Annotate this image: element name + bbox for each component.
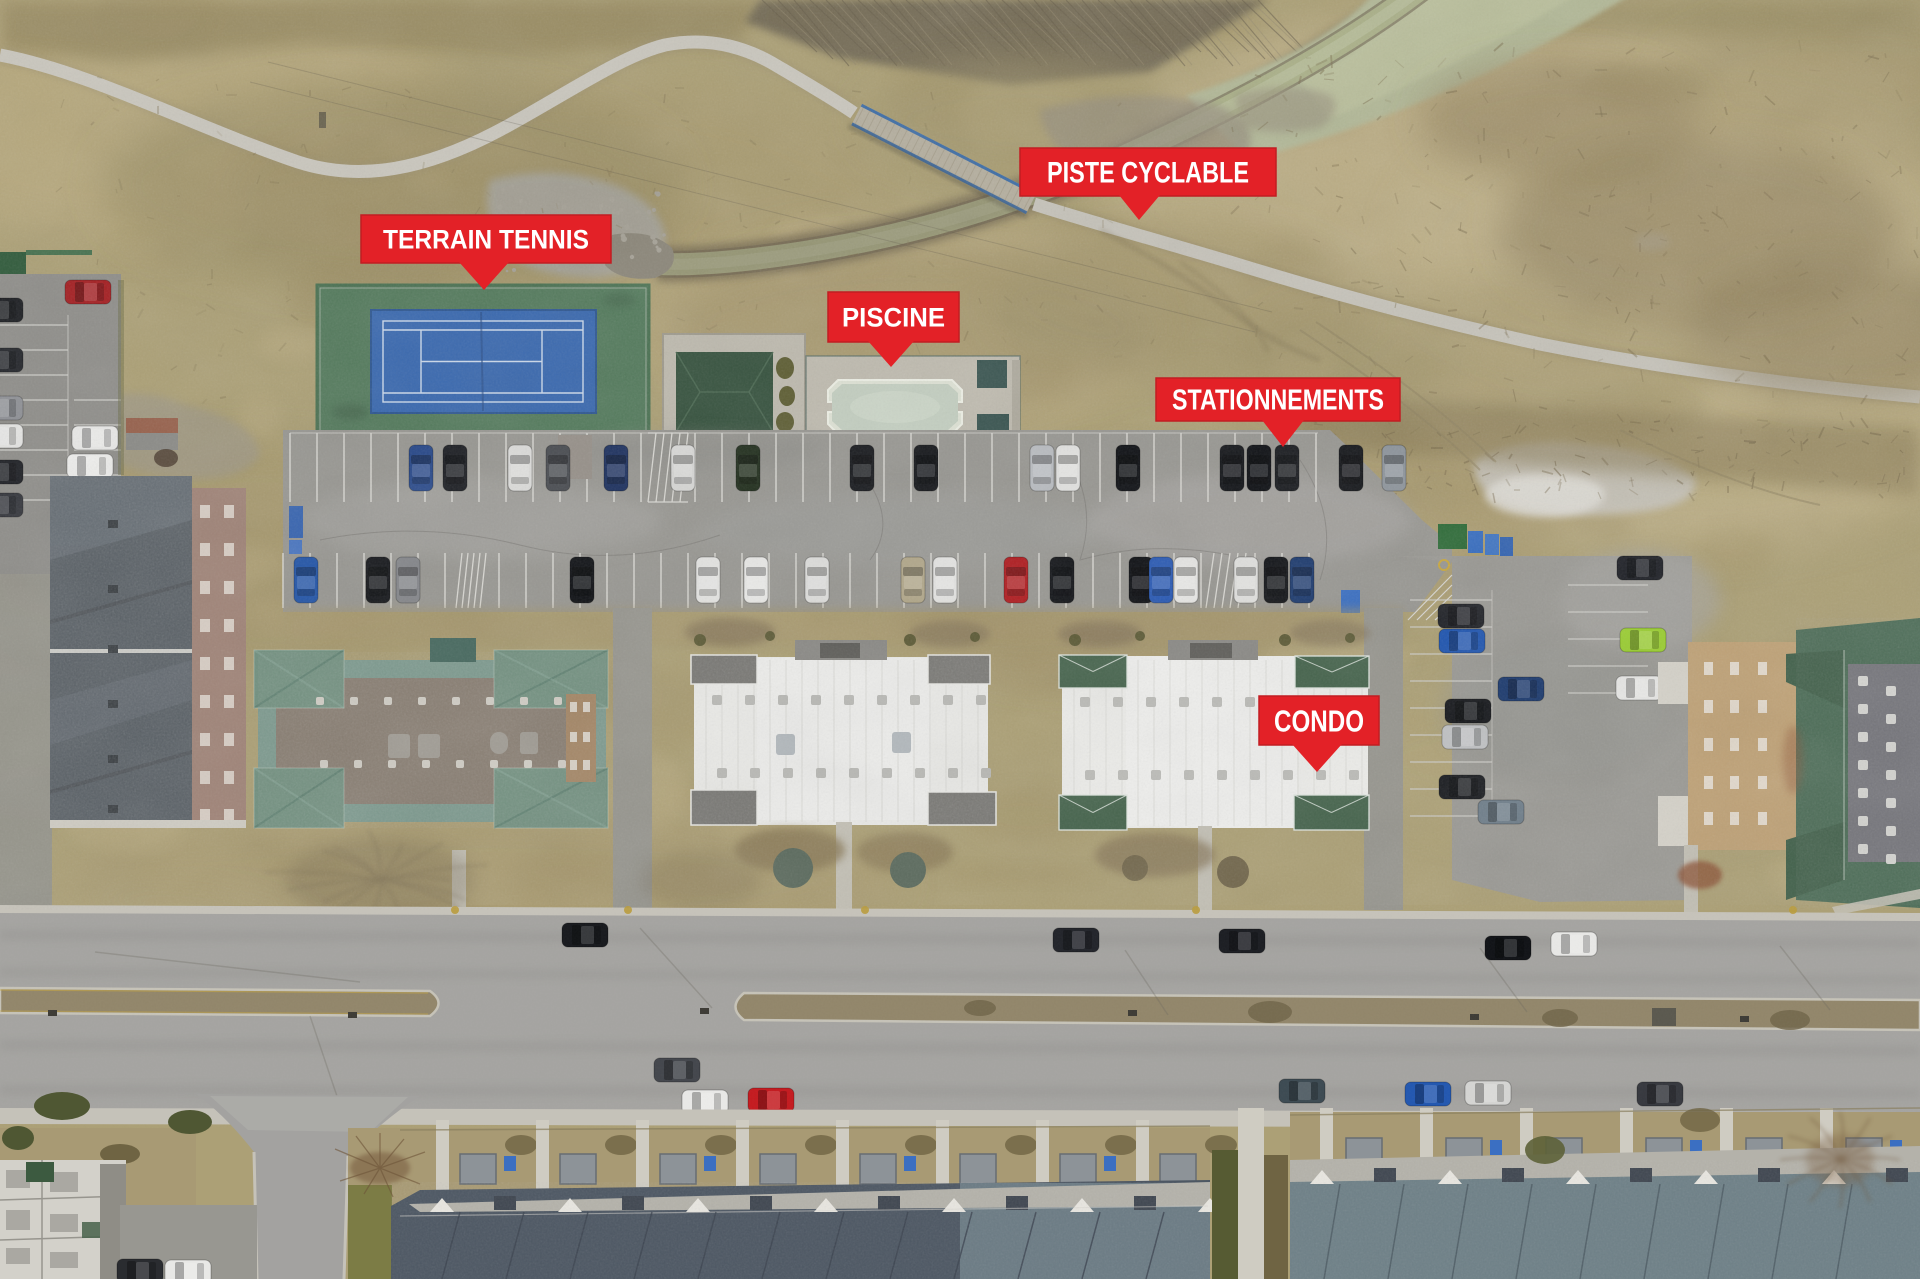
svg-text:STATIONNEMENTS: STATIONNEMENTS [1172, 385, 1384, 417]
svg-text:TERRAIN TENNIS: TERRAIN TENNIS [383, 224, 589, 254]
svg-text:PISCINE: PISCINE [842, 302, 945, 332]
svg-text:PISTE CYCLABLE: PISTE CYCLABLE [1047, 157, 1249, 190]
svg-text:CONDO: CONDO [1274, 703, 1364, 738]
